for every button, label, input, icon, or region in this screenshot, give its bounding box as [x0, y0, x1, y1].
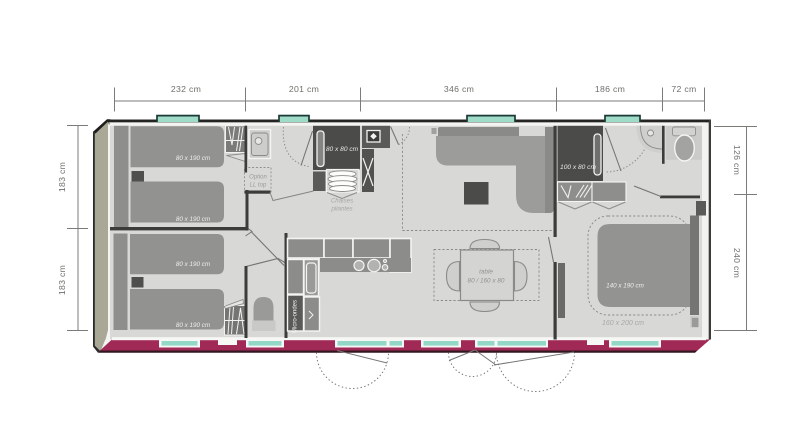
svg-text:140 x 190 cm: 140 x 190 cm — [606, 283, 644, 290]
svg-text:183 cm: 183 cm — [57, 162, 67, 192]
svg-text:201 cm: 201 cm — [289, 84, 319, 94]
svg-text:80 x 190 cm: 80 x 190 cm — [176, 261, 210, 268]
svg-text:160 x 200 cm: 160 x 200 cm — [602, 320, 644, 327]
svg-text:80 x 190 cm: 80 x 190 cm — [176, 322, 210, 329]
svg-text:80 x 80 cm: 80 x 80 cm — [326, 146, 359, 153]
svg-text:Chaises: Chaises — [331, 198, 353, 205]
svg-text:Option: Option — [249, 175, 267, 181]
svg-text:346 cm: 346 cm — [444, 84, 474, 94]
svg-text:LL top: LL top — [250, 183, 267, 189]
svg-text:232 cm: 232 cm — [171, 84, 201, 94]
svg-text:126 cm: 126 cm — [732, 145, 742, 175]
svg-text:183 cm: 183 cm — [57, 265, 67, 295]
svg-text:80 / 160 x 80: 80 / 160 x 80 — [468, 278, 505, 285]
svg-text:186 cm: 186 cm — [595, 84, 625, 94]
svg-text:80 x 190 cm: 80 x 190 cm — [176, 216, 210, 223]
svg-text:table: table — [479, 269, 493, 276]
svg-text:100 x 80 cm: 100 x 80 cm — [560, 164, 596, 171]
svg-text:80 x 190 cm: 80 x 190 cm — [176, 155, 210, 162]
svg-text:72 cm: 72 cm — [671, 84, 696, 94]
svg-text:pliantes: pliantes — [330, 206, 352, 213]
svg-text:240 cm: 240 cm — [732, 248, 742, 278]
svg-text:Micro-ondes: Micro-ondes — [293, 300, 299, 333]
